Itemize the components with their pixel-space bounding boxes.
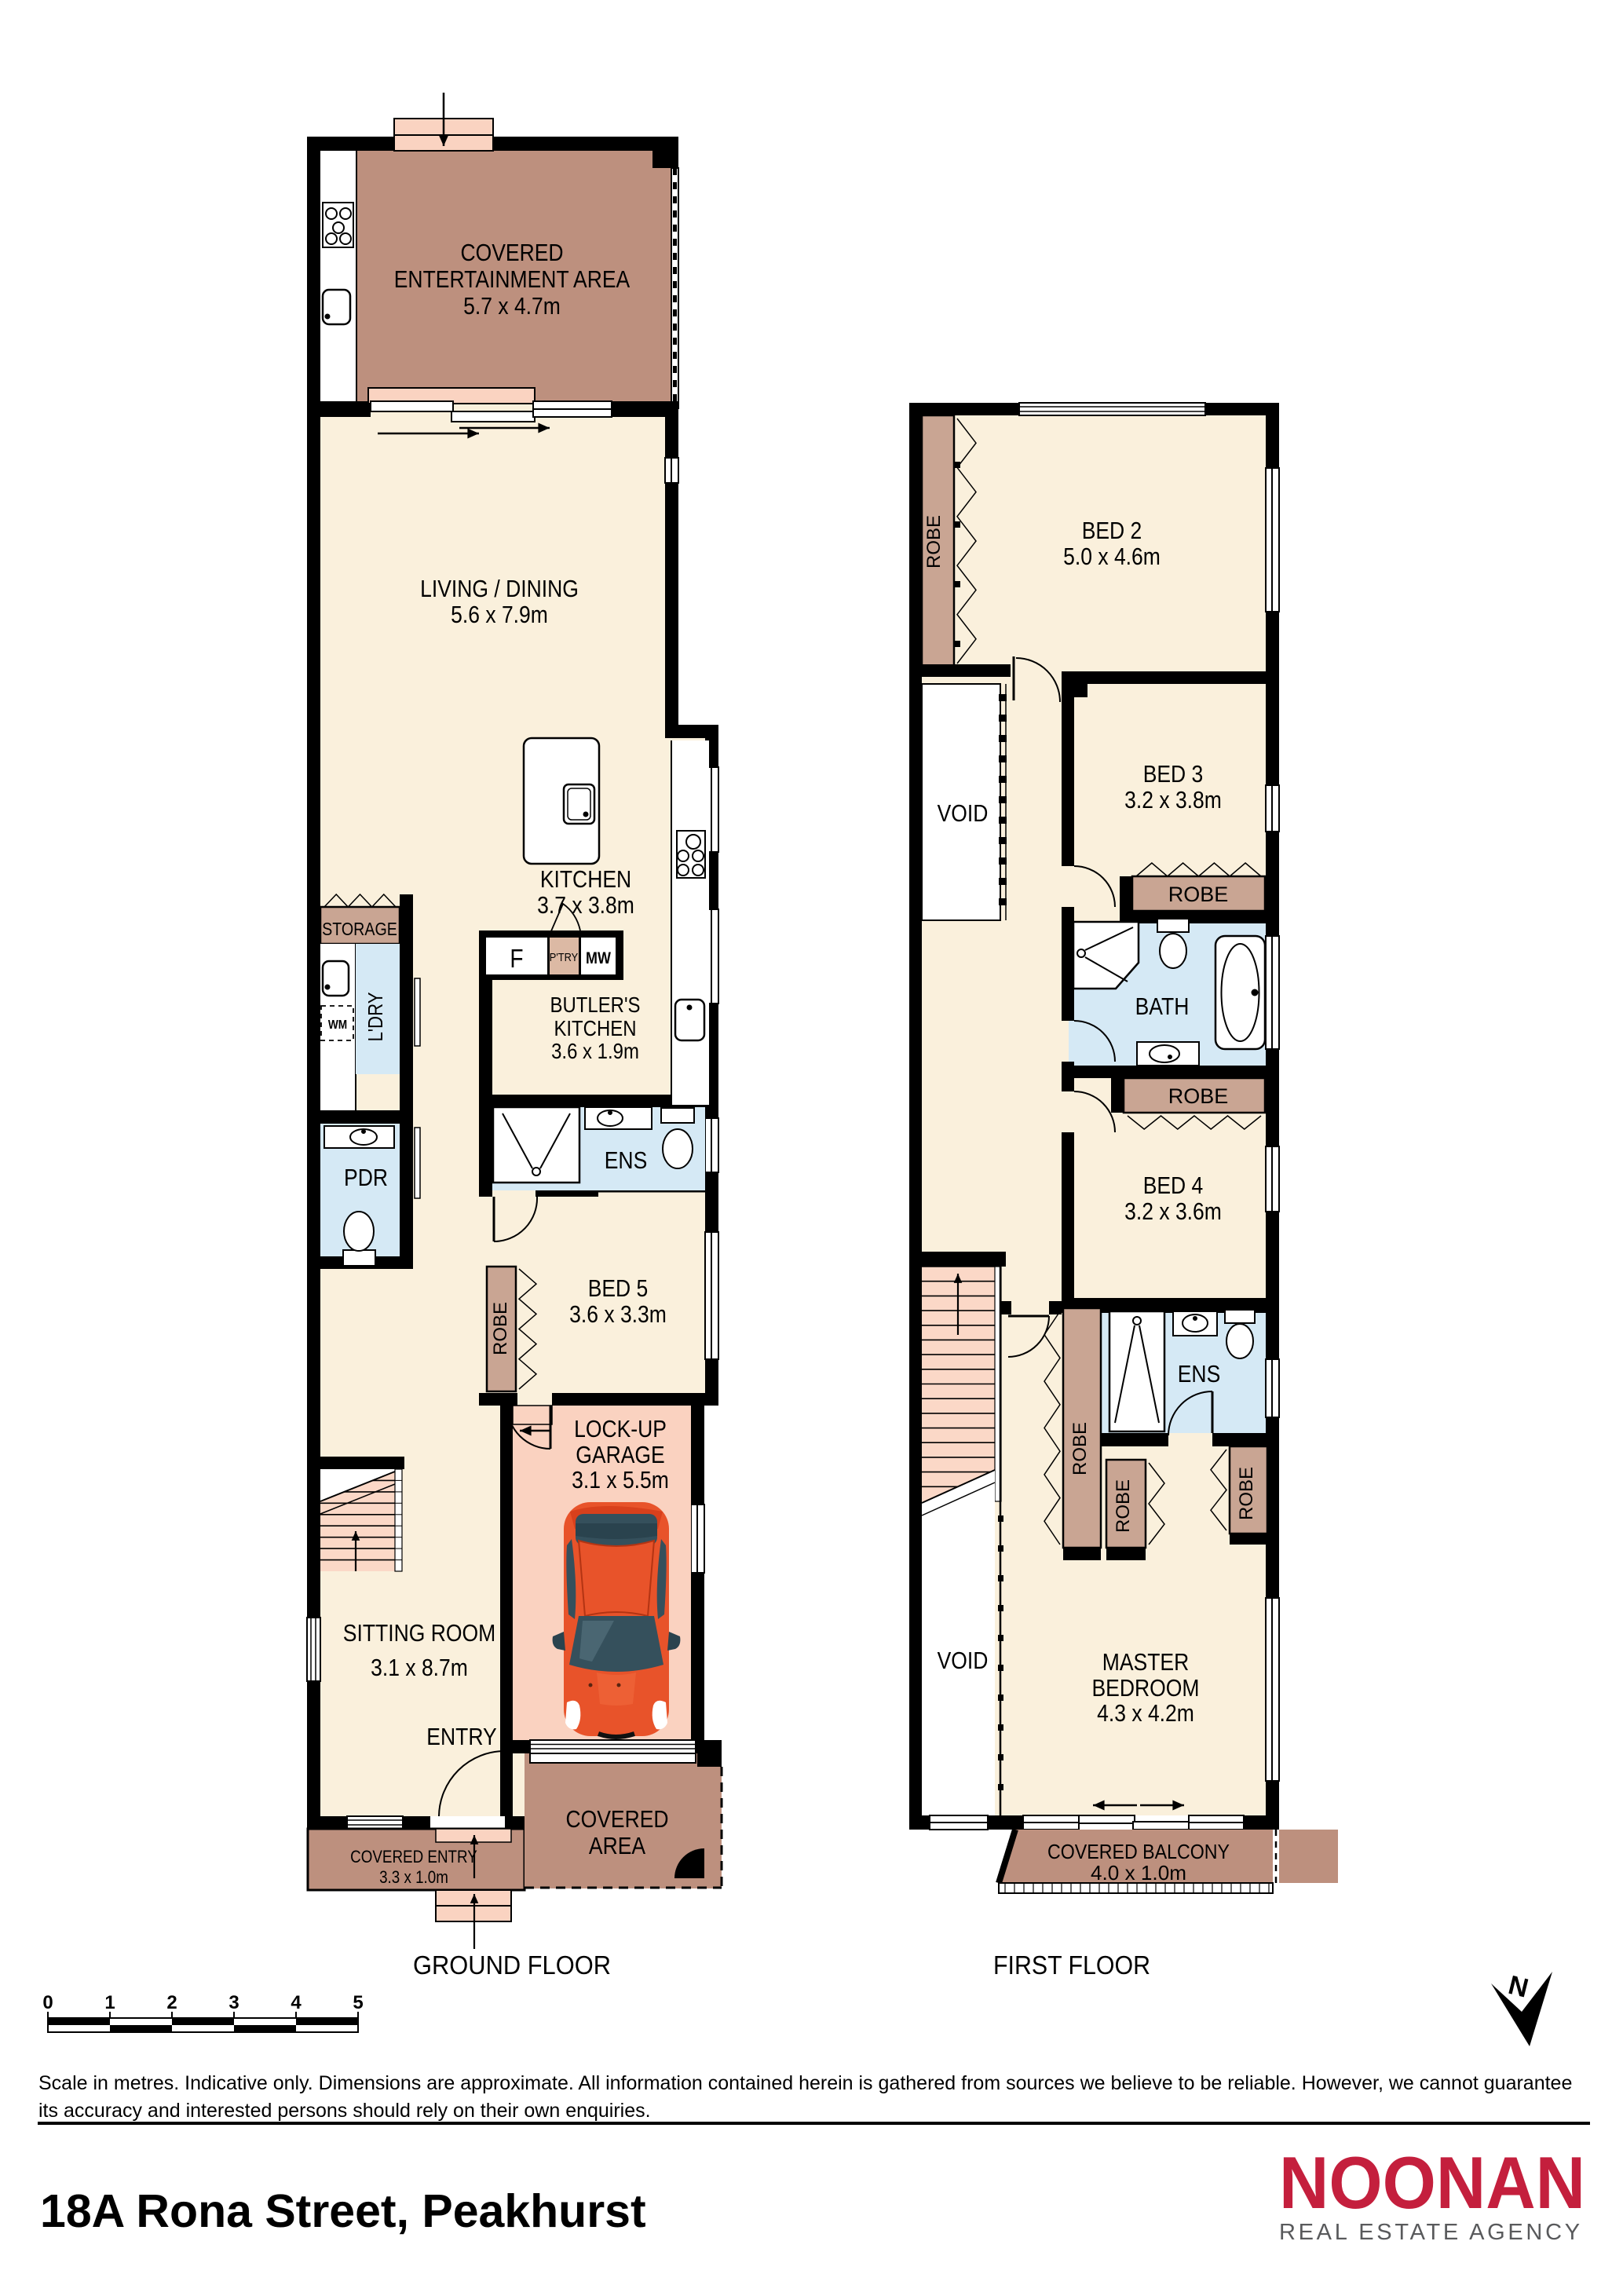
svg-text:3.1 x 8.7m: 3.1 x 8.7m <box>371 1654 468 1681</box>
svg-text:3.6 x 1.9m: 3.6 x 1.9m <box>551 1039 639 1063</box>
svg-text:COVERED: COVERED <box>565 1805 668 1833</box>
svg-text:BATH: BATH <box>1135 993 1190 1020</box>
svg-text:5.6 x 7.9m: 5.6 x 7.9m <box>451 601 548 628</box>
svg-text:1: 1 <box>104 1992 115 2013</box>
svg-text:3.3 x 1.0m: 3.3 x 1.0m <box>379 1867 448 1887</box>
svg-text:FIRST FLOOR: FIRST FLOOR <box>993 1951 1150 1980</box>
svg-text:4.3 x 4.2m: 4.3 x 4.2m <box>1097 1699 1194 1727</box>
svg-text:LOCK-UP: LOCK-UP <box>574 1415 667 1442</box>
svg-text:its accuracy and interested pe: its accuracy and interested persons shou… <box>38 2100 651 2122</box>
svg-text:STORAGE: STORAGE <box>322 919 397 939</box>
svg-text:P'TRY: P'TRY <box>550 951 578 964</box>
svg-text:ENS: ENS <box>1178 1360 1221 1387</box>
svg-text:MASTER: MASTER <box>1102 1648 1190 1676</box>
svg-text:ENS: ENS <box>605 1146 648 1174</box>
svg-text:0: 0 <box>42 1992 53 2013</box>
svg-text:COVERED ENTRY: COVERED ENTRY <box>350 1847 477 1866</box>
svg-text:ROBE: ROBE <box>1168 883 1229 906</box>
svg-text:NOONAN: NOONAN <box>1279 2141 1585 2224</box>
svg-text:3.6 x 3.3m: 3.6 x 3.3m <box>569 1300 667 1328</box>
svg-text:PDR: PDR <box>344 1164 388 1191</box>
svg-text:ROBE: ROBE <box>1236 1467 1257 1520</box>
svg-text:5.0 x 4.6m: 5.0 x 4.6m <box>1063 543 1161 570</box>
svg-text:ENTERTAINMENT AREA: ENTERTAINMENT AREA <box>394 265 631 293</box>
svg-text:MW: MW <box>586 949 611 967</box>
svg-text:ROBE: ROBE <box>923 515 945 569</box>
svg-text:KITCHEN: KITCHEN <box>540 865 631 893</box>
svg-text:COVERED: COVERED <box>460 239 563 266</box>
svg-text:WM: WM <box>328 1018 347 1032</box>
svg-text:ROBE: ROBE <box>1113 1479 1134 1533</box>
svg-text:F: F <box>510 944 523 973</box>
svg-text:BED 2: BED 2 <box>1082 517 1142 544</box>
svg-text:ROBE: ROBE <box>1168 1084 1229 1108</box>
svg-text:VOID: VOID <box>938 1647 989 1674</box>
svg-text:BED 4: BED 4 <box>1143 1172 1204 1199</box>
svg-text:18A Rona Street, Peakhurst: 18A Rona Street, Peakhurst <box>40 2185 646 2237</box>
svg-text:GARAGE: GARAGE <box>576 1441 664 1468</box>
svg-text:LIVING / DINING: LIVING / DINING <box>420 575 579 602</box>
svg-text:REAL ESTATE AGENCY: REAL ESTATE AGENCY <box>1279 2220 1583 2245</box>
svg-text:3: 3 <box>228 1992 239 2013</box>
svg-text:VOID: VOID <box>938 799 989 827</box>
svg-text:BED 3: BED 3 <box>1143 760 1204 788</box>
svg-text:3.1 x 5.5m: 3.1 x 5.5m <box>572 1466 669 1493</box>
svg-text:Scale in metres. Indicative on: Scale in metres. Indicative only. Dimens… <box>38 2072 1572 2094</box>
svg-text:3.2 x 3.6m: 3.2 x 3.6m <box>1124 1197 1222 1225</box>
svg-text:KITCHEN: KITCHEN <box>554 1016 636 1040</box>
svg-text:AREA: AREA <box>589 1832 645 1859</box>
svg-text:BUTLER'S: BUTLER'S <box>550 993 641 1017</box>
svg-text:BED 5: BED 5 <box>588 1274 649 1302</box>
svg-text:ROBE: ROBE <box>1069 1422 1091 1475</box>
svg-text:BEDROOM: BEDROOM <box>1092 1674 1200 1702</box>
svg-text:COVERED BALCONY: COVERED BALCONY <box>1047 1840 1230 1863</box>
svg-text:3.7 x 3.8m: 3.7 x 3.8m <box>537 891 634 919</box>
svg-text:ROBE: ROBE <box>490 1302 511 1355</box>
svg-text:L'DRY: L'DRY <box>364 992 387 1041</box>
svg-text:2: 2 <box>166 1992 177 2013</box>
svg-text:3.2 x 3.8m: 3.2 x 3.8m <box>1124 786 1222 813</box>
svg-text:ENTRY: ENTRY <box>426 1723 496 1750</box>
svg-text:GROUND FLOOR: GROUND FLOOR <box>413 1951 611 1980</box>
svg-text:SITTING ROOM: SITTING ROOM <box>343 1619 495 1647</box>
svg-text:4.0 x 1.0m: 4.0 x 1.0m <box>1091 1861 1186 1885</box>
svg-text:5: 5 <box>353 1992 363 2013</box>
svg-text:4: 4 <box>291 1992 302 2013</box>
svg-text:5.7 x 4.7m: 5.7 x 4.7m <box>463 292 561 320</box>
